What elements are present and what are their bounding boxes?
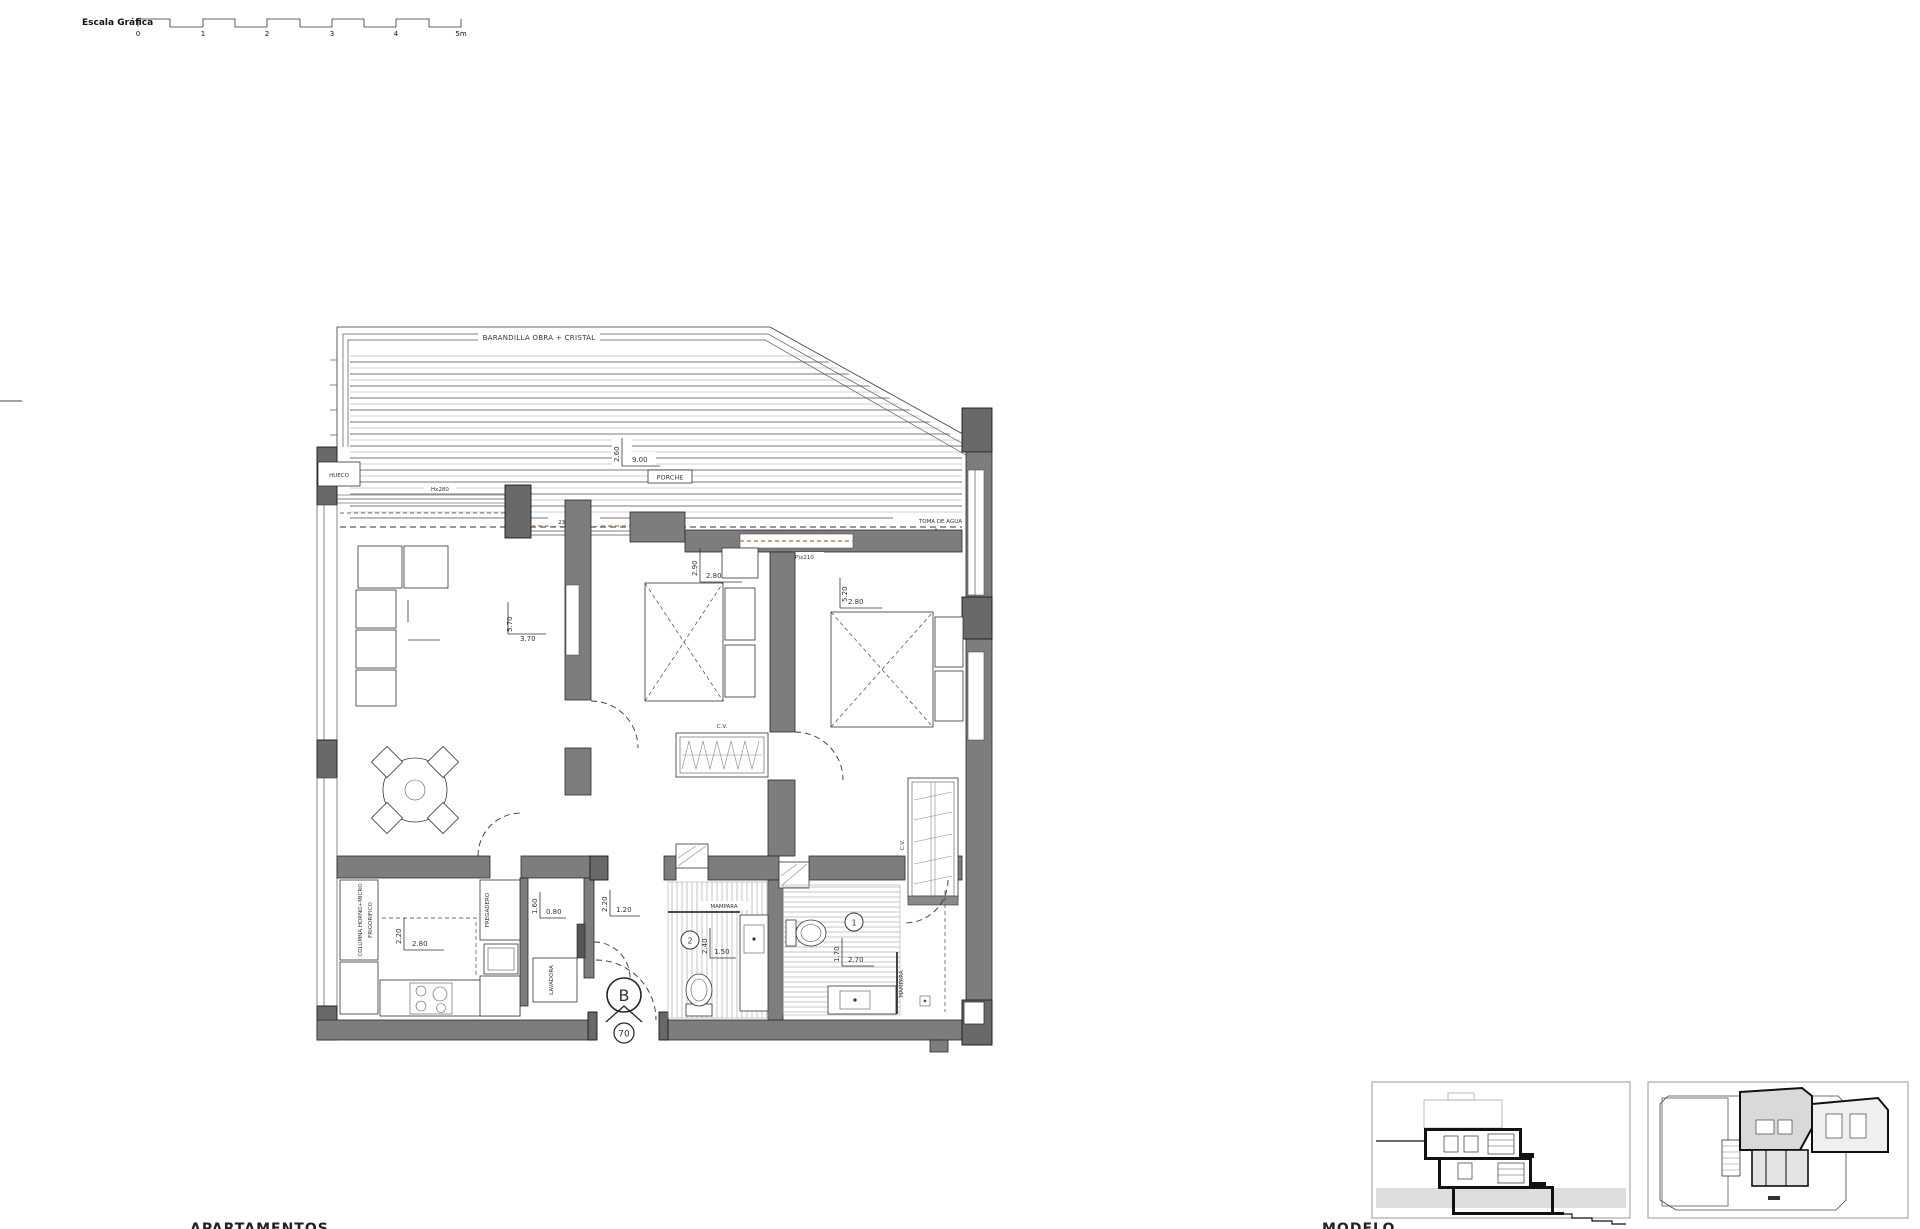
hall-dim-v: 2.20 [601, 896, 609, 912]
bath-wall-seg [809, 856, 905, 880]
floor-plan: BARANDILLA OBRA + CRISTAL 2.60 9.00 PORC… [317, 327, 992, 1052]
bathroom-2: MAMPARA 2 2.40 1.50 [668, 882, 768, 1018]
drain-stub [930, 1040, 948, 1052]
kitchen-sink-label: FREGADERO [485, 892, 491, 927]
hall-dim-h: 1.20 [616, 906, 632, 914]
bottom-wall-left [317, 1020, 592, 1040]
kitchen-column-label: COLUMNA HORNO+MICRO [358, 883, 364, 957]
section-wall [1438, 1157, 1441, 1189]
kitchen-clearance-dash [382, 918, 476, 978]
right-wall-window-1 [968, 470, 984, 595]
toilet-tank [786, 920, 796, 946]
bottom-wall-right [664, 1020, 962, 1040]
kitchen-wall-top-2 [521, 856, 590, 878]
closet1-label: C.V. [900, 840, 906, 851]
bed2-nightstand [722, 548, 758, 578]
toilet-bowl-inner [801, 925, 821, 942]
sofa-module [404, 546, 448, 588]
right-wall-pillar-mid [962, 597, 992, 639]
right-wall-pillar-top [962, 408, 992, 452]
section-slab [1424, 1128, 1522, 1131]
porch-label: PORCHE [657, 474, 684, 482]
site-stairs [1722, 1140, 1740, 1176]
bedroom2-dim-v: 2.90 [691, 560, 699, 576]
scale-tick-3: 3 [330, 30, 334, 38]
bath2-dim-h: 1.50 [714, 948, 730, 956]
section-balcony [1522, 1153, 1534, 1158]
bath2-dim-v: 2.40 [701, 938, 709, 954]
footer-left-title: APARTAMENTOS [190, 1221, 329, 1229]
drawing-sheet: Escala Gráfica 0 1 2 3 4 5m BARANDILLA O… [0, 0, 1920, 1229]
porch-dim-width: 9.00 [632, 456, 648, 464]
facade-column [505, 485, 531, 538]
scale-tick-4: 4 [394, 30, 399, 38]
bedroom2-dim-h: 2.80 [706, 572, 722, 580]
drawing-canvas: Escala Gráfica 0 1 2 3 4 5m BARANDILLA O… [0, 0, 1920, 1229]
laundry-dim-v: 1.60 [531, 898, 539, 914]
site-unit-shaded [1740, 1088, 1812, 1150]
bath2-toilet [686, 974, 712, 1016]
bath1-dim-h: 2.70 [848, 956, 864, 964]
site-room [1756, 1120, 1774, 1134]
dining-table-center [405, 780, 425, 800]
kitchen-fridge [340, 962, 378, 1014]
drain-dot [924, 1000, 927, 1003]
bath1-dim-v: 1.70 [833, 946, 841, 962]
porch-dim-depth: 2.60 [613, 446, 621, 462]
site-entry-mark [1768, 1196, 1780, 1200]
bed2-pillow [725, 645, 755, 697]
washer-label: LAVADORA [549, 965, 555, 995]
kitchen-counter-right [480, 976, 520, 1016]
scale-bar-steps [138, 19, 461, 27]
section-ground-band [1376, 1188, 1626, 1208]
living-dim-h: 3.70 [520, 635, 536, 643]
bedroom2-door-arc [591, 701, 638, 748]
bath1-toilet [786, 920, 826, 946]
scale-tick-1: 1 [201, 30, 205, 38]
scale-tick-5: 5m [455, 30, 466, 38]
kitchen-wall-top [337, 856, 490, 878]
bath-wall-seg [708, 856, 779, 880]
right-wall-niche [964, 1002, 984, 1024]
left-wall-pillar-mid [317, 740, 337, 778]
bath1-screen-label: MAMPARA [899, 970, 905, 998]
tap-icon [853, 998, 856, 1001]
burner [437, 1004, 446, 1013]
water-tap-label: TOMA DE AGUA [918, 519, 962, 525]
hall: 2.20 1.20 B 70 [596, 890, 656, 1043]
washer [533, 958, 577, 1002]
scale-tick-2: 2 [265, 30, 269, 38]
site-bed [1850, 1114, 1866, 1138]
bed1-pillow [935, 617, 963, 667]
kitchen-dim-v: 2.20 [395, 928, 403, 944]
bedroom1-dim-h: 2.80 [848, 598, 864, 606]
entry-jamb-left [588, 1012, 597, 1040]
sofa-module [358, 546, 402, 588]
living-dim-v: 5.70 [506, 616, 514, 632]
bed2-pillow [725, 588, 755, 640]
scale-tick-0: 0 [136, 30, 140, 38]
entry-jamb-right [659, 1012, 668, 1040]
unit-marker: B 70 [606, 978, 642, 1043]
section-wall [1424, 1128, 1427, 1160]
site-bed [1826, 1114, 1842, 1138]
bath2-number: 2 [687, 937, 692, 946]
graphic-scale: Escala Gráfica 0 1 2 3 4 5m [82, 18, 467, 38]
sofa-chaise [356, 670, 396, 706]
closet2-label: C.V. [717, 724, 728, 730]
hall-wall-block [565, 748, 591, 795]
bath-wall-seg [664, 856, 676, 880]
tv-unit [566, 585, 579, 655]
toilet-bowl-inner [691, 979, 707, 1001]
unit-type-letter: B [619, 986, 630, 1005]
sofa-module [356, 590, 396, 628]
kitchen-fridge-label: FRIGORIFICO [368, 902, 374, 938]
bedroom-divider-wall [770, 552, 795, 732]
section-wall [1519, 1128, 1522, 1160]
siteplan-inset [1648, 1082, 1908, 1218]
living-room: 5.70 3.70 [356, 546, 546, 834]
tap-icon [752, 937, 755, 940]
bed1-pillow [935, 671, 963, 721]
left-wall-glazing-2 [317, 778, 337, 1006]
kitchen-laundry-wall [520, 878, 528, 1006]
sink-bowl-inner [488, 948, 514, 970]
hueco-label: HUECO [329, 473, 349, 479]
section-wall [1529, 1157, 1532, 1189]
bedroom-2: 2.90 2.80 C.V. [591, 548, 768, 777]
bath1-number: 1 [851, 919, 856, 928]
footer-right-title: MODELO [1322, 1221, 1395, 1229]
burner [416, 1001, 426, 1011]
section-wall [1452, 1186, 1455, 1215]
kitchen-dim-h: 2.80 [412, 940, 428, 948]
section-balcony [1532, 1182, 1546, 1187]
left-wall-glazing-1 [317, 505, 337, 740]
kitchen-door-arc [478, 813, 521, 856]
burner [433, 987, 447, 1001]
right-wall-window-2 [968, 652, 984, 740]
kitchen: COLUMNA HORNO+MICRO FRIGORIFICO FREGADER… [340, 813, 521, 1016]
window-height-label: Hx280 [431, 487, 449, 493]
laundry-hall-wall [584, 878, 594, 978]
facade-wall-stub [630, 512, 685, 542]
hall-corner-pillar [590, 856, 608, 880]
site-lower-rooms [1752, 1150, 1808, 1186]
section-slab [1452, 1212, 1564, 1215]
unit-number: 70 [618, 1030, 630, 1040]
site-room [1778, 1120, 1792, 1134]
railing-label: BARANDILLA OBRA + CRISTAL [483, 334, 596, 342]
sofa-module [356, 630, 396, 668]
scale-title: Escala Gráfica [82, 18, 153, 28]
burner [416, 986, 426, 996]
section-inset [1372, 1082, 1630, 1224]
laundry-dim-h: 0.80 [546, 908, 562, 916]
bath2-screen-label: MAMPARA [710, 904, 738, 910]
section-wall [1551, 1186, 1554, 1215]
bath-divider-wall [768, 880, 783, 1020]
corridor-wall [768, 780, 795, 856]
closet1-base [908, 896, 958, 905]
water-heater [577, 924, 585, 958]
bedroom1-door-arc [795, 732, 843, 780]
